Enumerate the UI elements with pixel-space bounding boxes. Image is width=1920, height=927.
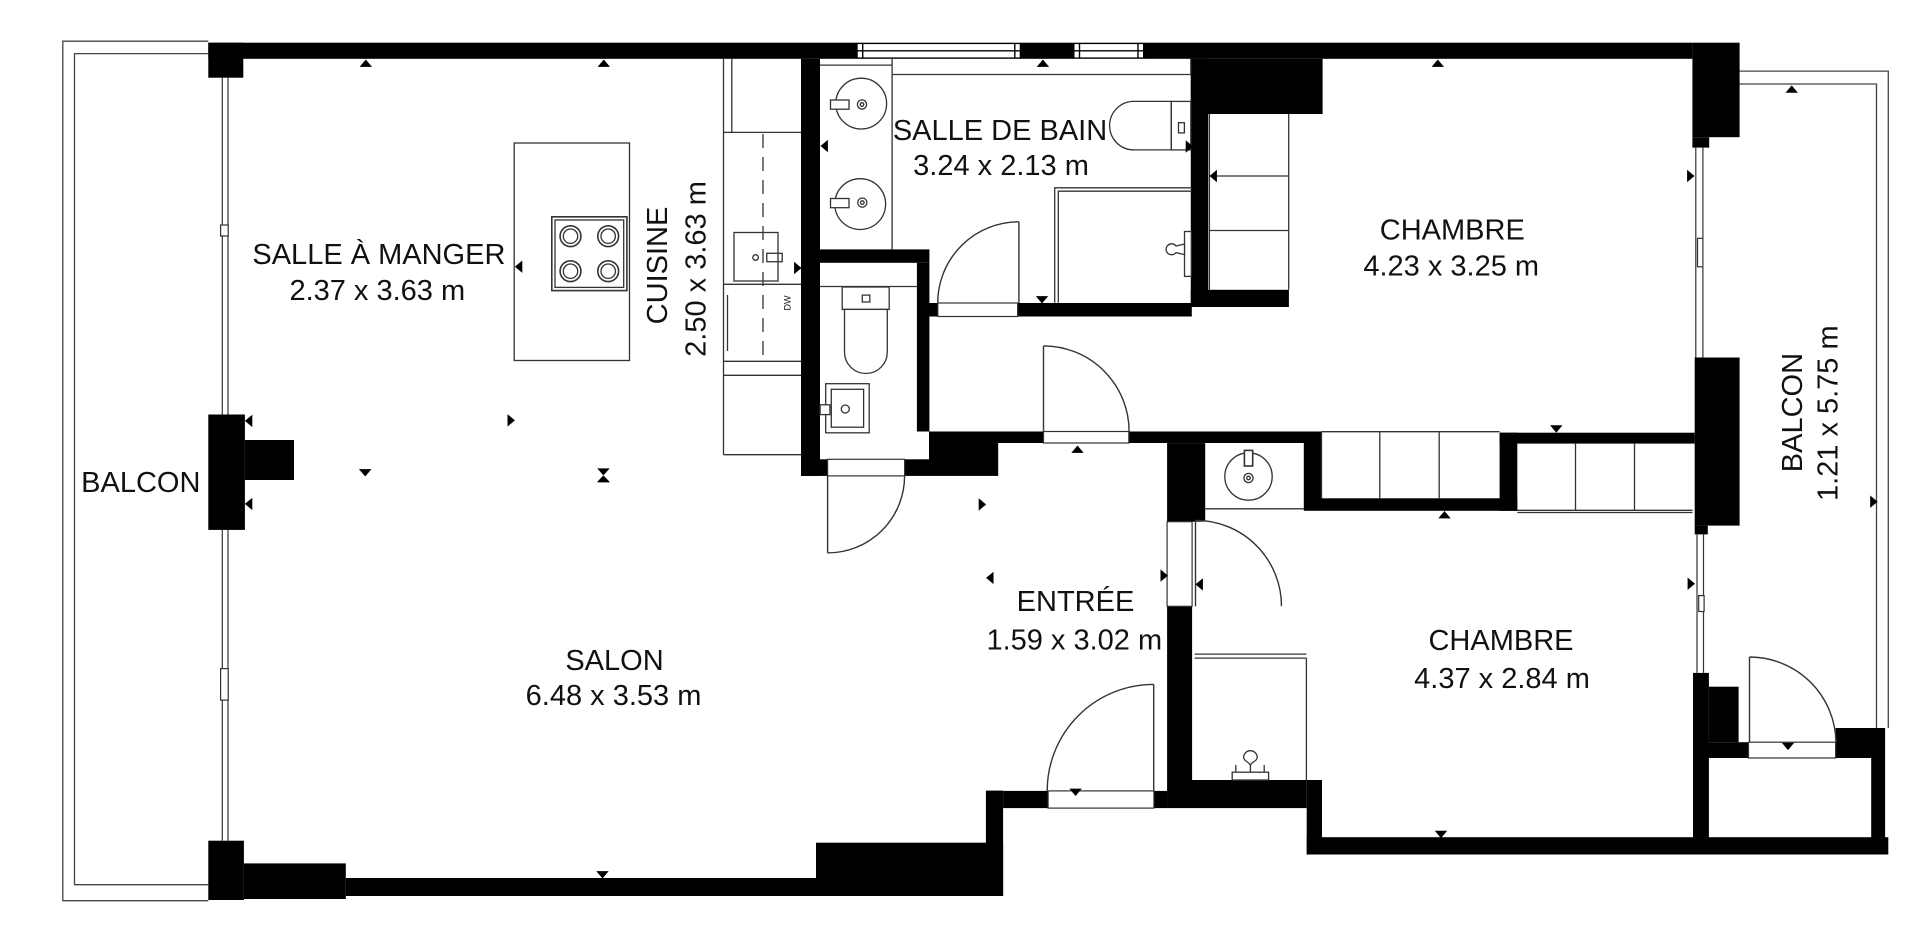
svg-text:SALON: SALON — [565, 645, 663, 677]
svg-text:CHAMBRE: CHAMBRE — [1380, 214, 1525, 246]
svg-text:BALCON: BALCON — [1777, 353, 1809, 472]
svg-text:1.59 x 3.02 m: 1.59 x 3.02 m — [986, 625, 1162, 657]
svg-text:SALLE DE BAIN: SALLE DE BAIN — [893, 115, 1107, 147]
svg-text:3.24 x 2.13 m: 3.24 x 2.13 m — [913, 150, 1089, 182]
svg-text:BALCON: BALCON — [81, 467, 200, 499]
svg-text:DW: DW — [783, 295, 793, 310]
svg-text:ENTRÉE: ENTRÉE — [1017, 585, 1135, 618]
svg-text:4.37 x 2.84 m: 4.37 x 2.84 m — [1414, 663, 1590, 695]
svg-text:2.50 x 3.63 m: 2.50 x 3.63 m — [681, 181, 713, 357]
svg-text:SALLE À MANGER: SALLE À MANGER — [252, 238, 505, 271]
svg-text:6.48 x 3.53 m: 6.48 x 3.53 m — [526, 680, 702, 712]
svg-text:2.37 x 3.63 m: 2.37 x 3.63 m — [289, 275, 465, 307]
svg-text:1.21 x 5.75 m: 1.21 x 5.75 m — [1813, 325, 1845, 501]
svg-text:CHAMBRE: CHAMBRE — [1428, 625, 1573, 657]
svg-text:CUISINE: CUISINE — [642, 207, 674, 325]
svg-text:4.23 x 3.25 m: 4.23 x 3.25 m — [1363, 250, 1539, 282]
